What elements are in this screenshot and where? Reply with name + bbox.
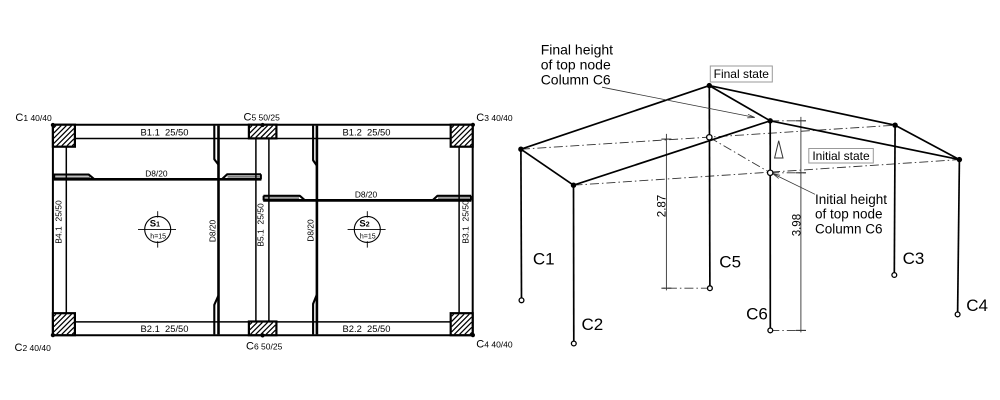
svg-text:Column C6: Column C6 bbox=[815, 221, 883, 236]
svg-text:C1 40/40: C1 40/40 bbox=[15, 112, 52, 124]
svg-text:D8/20: D8/20 bbox=[145, 168, 168, 178]
svg-text:S1: S1 bbox=[150, 219, 160, 230]
svg-text:D8/20: D8/20 bbox=[306, 219, 316, 242]
svg-text:D8/20: D8/20 bbox=[355, 190, 378, 200]
svg-text:Final height: Final height bbox=[541, 42, 613, 58]
svg-text:B3.1 25/50: B3.1 25/50 bbox=[461, 200, 471, 244]
svg-text:B2.1 25/50: B2.1 25/50 bbox=[141, 323, 189, 334]
svg-text:Column C6: Column C6 bbox=[541, 72, 611, 88]
svg-text:B4.1 25/50: B4.1 25/50 bbox=[54, 200, 64, 244]
svg-text:of top node: of top node bbox=[815, 207, 883, 222]
svg-text:C2 40/40: C2 40/40 bbox=[15, 342, 52, 354]
svg-text:D8/20: D8/20 bbox=[207, 219, 217, 242]
svg-text:C6: C6 bbox=[746, 304, 768, 323]
svg-text:C3: C3 bbox=[903, 249, 925, 268]
svg-text:C1: C1 bbox=[533, 250, 555, 269]
svg-text:C5 50/25: C5 50/25 bbox=[244, 112, 281, 124]
svg-text:B2.2 25/50: B2.2 25/50 bbox=[343, 323, 391, 334]
svg-text:C4: C4 bbox=[966, 296, 988, 315]
svg-text:2.87: 2.87 bbox=[656, 195, 668, 217]
svg-text:of top node: of top node bbox=[541, 57, 611, 73]
svg-text:C2: C2 bbox=[582, 315, 604, 334]
svg-text:B5.1 25/50: B5.1 25/50 bbox=[256, 203, 266, 247]
svg-text:Initial state: Initial state bbox=[812, 149, 870, 163]
svg-text:B1.1 25/50: B1.1 25/50 bbox=[141, 126, 189, 137]
svg-text:C6 50/25: C6 50/25 bbox=[246, 341, 283, 353]
svg-text:Initial height: Initial height bbox=[815, 192, 887, 207]
svg-text:C3 40/40: C3 40/40 bbox=[476, 112, 513, 124]
svg-text:B1.2 25/50: B1.2 25/50 bbox=[343, 126, 391, 137]
svg-text:C5: C5 bbox=[719, 253, 741, 272]
svg-text:Final state: Final state bbox=[714, 67, 770, 81]
svg-text:S2: S2 bbox=[359, 219, 369, 230]
svg-text:C4 40/40: C4 40/40 bbox=[476, 339, 513, 351]
svg-text:h=15: h=15 bbox=[360, 233, 376, 240]
svg-text:h=15: h=15 bbox=[150, 233, 166, 240]
svg-text:3.98: 3.98 bbox=[791, 214, 803, 236]
